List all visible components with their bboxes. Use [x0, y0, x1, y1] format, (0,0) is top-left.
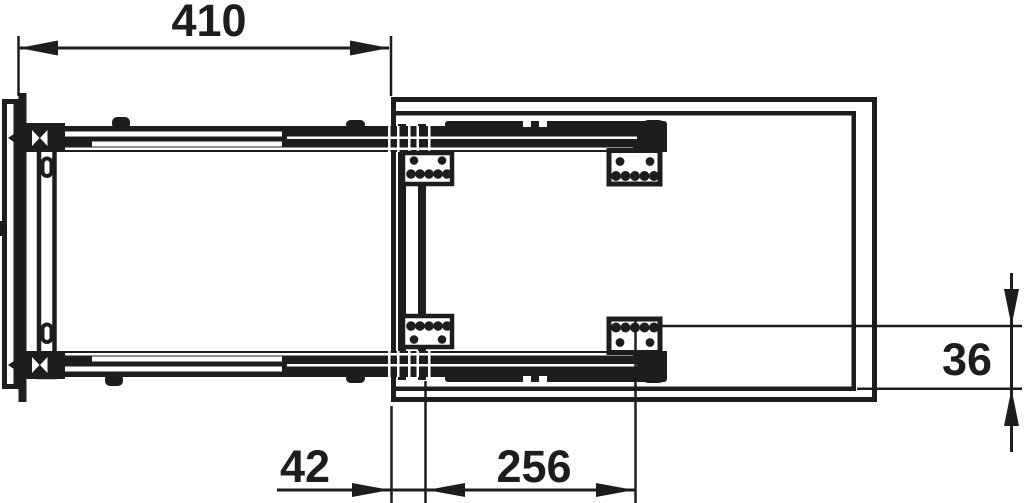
bottom-runner: [18, 351, 667, 386]
mounting-bracket-front-bottom: [403, 316, 452, 347]
dimension-bracket-pitch: 256: [426, 319, 636, 503]
dimension-label-36: 36: [942, 334, 992, 385]
top-runner-end-cap: [640, 120, 667, 152]
drawing-page: 410 42 256 36: [0, 0, 1024, 503]
dimension-label-410: 410: [171, 0, 246, 46]
arrowhead-down-icon: [1004, 289, 1019, 326]
top-runner-notch-b: [539, 121, 547, 127]
arrowhead-left-icon: [427, 483, 465, 497]
bottom-runner-end-cap: [640, 351, 667, 383]
bottom-runner-groove-c: [287, 364, 637, 367]
top-runner-roller-front: [112, 117, 130, 129]
top-runner-groove-c: [287, 137, 637, 140]
arrowhead-right-icon: [596, 483, 634, 497]
top-runner: [18, 117, 667, 152]
top-runner-notch-a: [523, 121, 531, 127]
bottom-runner-groove-b: [92, 357, 282, 362]
arrowhead-right-icon: [350, 41, 389, 56]
mounting-brackets: [403, 151, 660, 353]
dimension-extension-length: 410: [19, 0, 392, 96]
mounting-bracket-rear-top: [609, 151, 660, 185]
dimension-label-256: 256: [496, 441, 571, 492]
top-runner-groove-b: [92, 142, 282, 147]
bottom-runner-roller-mid: [346, 374, 365, 383]
arrowhead-left-icon: [19, 41, 58, 56]
upright-slot-bottom: [43, 325, 52, 343]
technical-drawing-canvas: 410 42 256 36: [0, 0, 1024, 503]
arrowhead-right-icon: [352, 483, 390, 497]
bottom-runner-notch-a: [523, 376, 531, 382]
bottom-runner-groove-a: [65, 367, 282, 372]
arrowhead-up-icon: [1004, 389, 1019, 426]
door-panel-outline: [5, 102, 17, 387]
bottom-runner-roller-front: [105, 374, 123, 386]
dimension-side-inset: 36: [662, 273, 1022, 452]
door-panel: [0, 102, 16, 387]
bottom-runner-groove-d: [65, 353, 633, 356]
door-handle-nub: [0, 221, 6, 236]
top-runner-groove-d: [65, 148, 633, 151]
bottom-runner-notch-b: [539, 376, 547, 382]
mounting-bracket-front-top: [403, 153, 452, 184]
top-runner-roller-mid: [346, 120, 365, 129]
top-runner-groove-a: [65, 132, 282, 137]
dimension-label-42: 42: [280, 441, 330, 492]
upright-slot-top: [43, 159, 52, 177]
